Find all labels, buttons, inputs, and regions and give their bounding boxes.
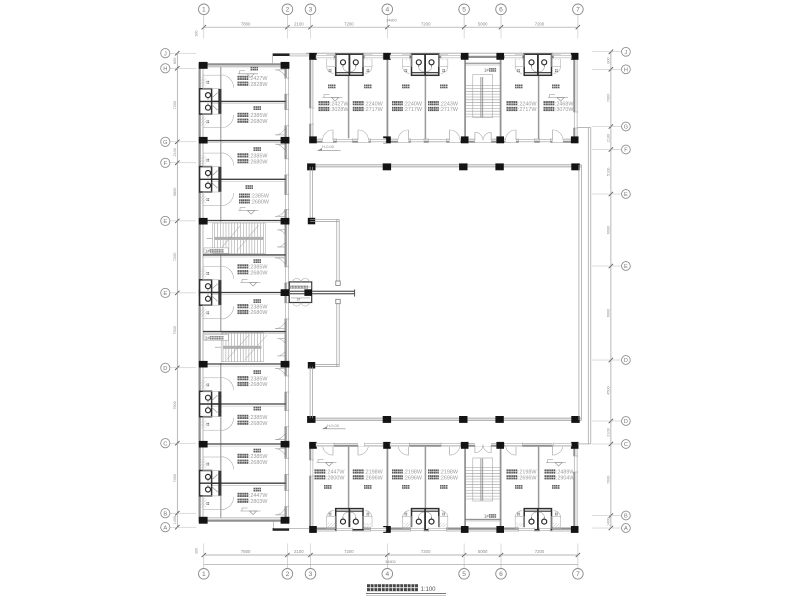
svg-text:34800: 34800	[386, 19, 397, 23]
svg-text:1#: 1#	[205, 249, 210, 254]
svg-text:1400: 1400	[607, 518, 611, 526]
svg-text:7000: 7000	[173, 474, 177, 482]
svg-text:2100: 2100	[607, 134, 611, 142]
svg-text:F: F	[624, 148, 628, 154]
svg-text:4500: 4500	[607, 386, 611, 394]
svg-text:4: 4	[385, 7, 389, 14]
svg-text:1: 1	[202, 7, 206, 14]
svg-text::2828W: :2828W	[249, 82, 268, 88]
svg-text::2717W: :2717W	[403, 107, 422, 113]
svg-text::2696W: :2696W	[403, 475, 422, 481]
svg-text:2100: 2100	[607, 428, 611, 436]
svg-text:3: 3	[309, 571, 313, 578]
svg-text:H-0.00: H-0.00	[327, 423, 340, 428]
svg-text:E: E	[163, 291, 167, 297]
svg-text:4: 4	[385, 571, 389, 578]
svg-text:2100: 2100	[294, 549, 304, 554]
svg-text:2100: 2100	[294, 21, 304, 26]
svg-text:7000: 7000	[607, 94, 611, 102]
svg-text::2680W: :2680W	[249, 382, 268, 388]
svg-text:1#: 1#	[297, 298, 301, 302]
svg-text:7200: 7200	[535, 549, 545, 554]
svg-text:7800: 7800	[241, 21, 251, 26]
svg-text:D: D	[624, 358, 628, 364]
svg-text:1400: 1400	[173, 516, 177, 524]
svg-text::3070W: :3070W	[555, 107, 574, 113]
svg-text:C: C	[163, 441, 167, 447]
svg-text:300: 300	[195, 31, 199, 37]
svg-text:6: 6	[499, 7, 503, 14]
svg-text:2#: 2#	[205, 335, 210, 340]
svg-text:7800: 7800	[241, 549, 251, 554]
svg-text:5800: 5800	[173, 188, 177, 196]
svg-text::2904W: :2904W	[556, 475, 575, 481]
svg-text:H: H	[163, 66, 167, 72]
svg-text::2680W: :2680W	[250, 200, 269, 206]
svg-text::2803W: :2803W	[249, 499, 268, 505]
svg-text:G: G	[163, 140, 168, 146]
svg-text:5000: 5000	[478, 549, 488, 554]
svg-text:5: 5	[462, 7, 466, 14]
svg-text:300: 300	[195, 548, 199, 554]
svg-text::3028W: :3028W	[330, 107, 349, 113]
svg-text::2696W: :2696W	[364, 475, 383, 481]
svg-text::2680W: :2680W	[249, 270, 268, 276]
svg-text:1#: 1#	[484, 514, 489, 519]
svg-text:7500: 7500	[173, 326, 177, 334]
svg-text:F: F	[164, 161, 168, 167]
svg-text:7200: 7200	[421, 21, 431, 26]
svg-text:7200: 7200	[421, 549, 431, 554]
svg-text:7200: 7200	[173, 101, 177, 109]
svg-text::2717W: :2717W	[439, 107, 458, 113]
svg-text:A: A	[163, 525, 167, 531]
svg-text:6900: 6900	[607, 309, 611, 317]
svg-text:2: 2	[286, 7, 290, 14]
svg-text:B: B	[163, 511, 167, 517]
svg-text:1: 1	[202, 571, 206, 578]
svg-text:3: 3	[309, 7, 313, 14]
svg-text::2680W: :2680W	[249, 310, 268, 316]
svg-text:2100: 2100	[173, 148, 177, 156]
svg-text:J: J	[625, 50, 628, 56]
svg-text::2680W: :2680W	[249, 119, 268, 125]
svg-text:C: C	[624, 442, 628, 448]
svg-text:B: B	[624, 514, 628, 520]
svg-text:7000: 7000	[607, 476, 611, 484]
svg-text:800: 800	[607, 57, 611, 63]
svg-text:1:100: 1:100	[421, 587, 437, 593]
svg-text:D: D	[163, 366, 167, 372]
svg-text:800: 800	[173, 58, 177, 64]
svg-text:5: 5	[462, 571, 466, 578]
svg-text:A: A	[624, 526, 628, 532]
svg-text:5000: 5000	[478, 21, 488, 26]
svg-text::2680W: :2680W	[249, 460, 268, 466]
svg-text:G: G	[624, 125, 628, 131]
svg-text:7: 7	[576, 7, 580, 14]
svg-text:7200: 7200	[173, 253, 177, 261]
svg-text::2717W: :2717W	[364, 107, 383, 113]
svg-text:7200: 7200	[344, 21, 354, 26]
svg-text:1#: 1#	[484, 68, 489, 73]
svg-text:J: J	[164, 51, 167, 57]
svg-text:E: E	[624, 192, 628, 198]
svg-text:7200: 7200	[344, 549, 354, 554]
svg-text:E: E	[163, 219, 167, 225]
svg-text:7: 7	[576, 571, 580, 578]
svg-text::2800W: :2800W	[326, 475, 345, 481]
svg-text:7500: 7500	[173, 401, 177, 409]
svg-text:6: 6	[499, 571, 503, 578]
svg-text::2717W: :2717W	[518, 107, 537, 113]
svg-text:2: 2	[286, 571, 290, 578]
svg-text:5100: 5100	[607, 168, 611, 176]
svg-text::2696W: :2696W	[518, 475, 537, 481]
svg-text:7200: 7200	[535, 21, 545, 26]
svg-text::2680W: :2680W	[249, 421, 268, 427]
svg-text:E: E	[624, 264, 628, 270]
svg-text:6900: 6900	[607, 226, 611, 234]
svg-text::2696W: :2696W	[439, 475, 458, 481]
svg-text:H: H	[624, 67, 628, 73]
svg-text:D: D	[624, 419, 628, 425]
svg-text:34800: 34800	[385, 560, 396, 564]
svg-text::2680W: :2680W	[249, 159, 268, 165]
svg-text:H-0.00: H-0.00	[322, 144, 335, 149]
